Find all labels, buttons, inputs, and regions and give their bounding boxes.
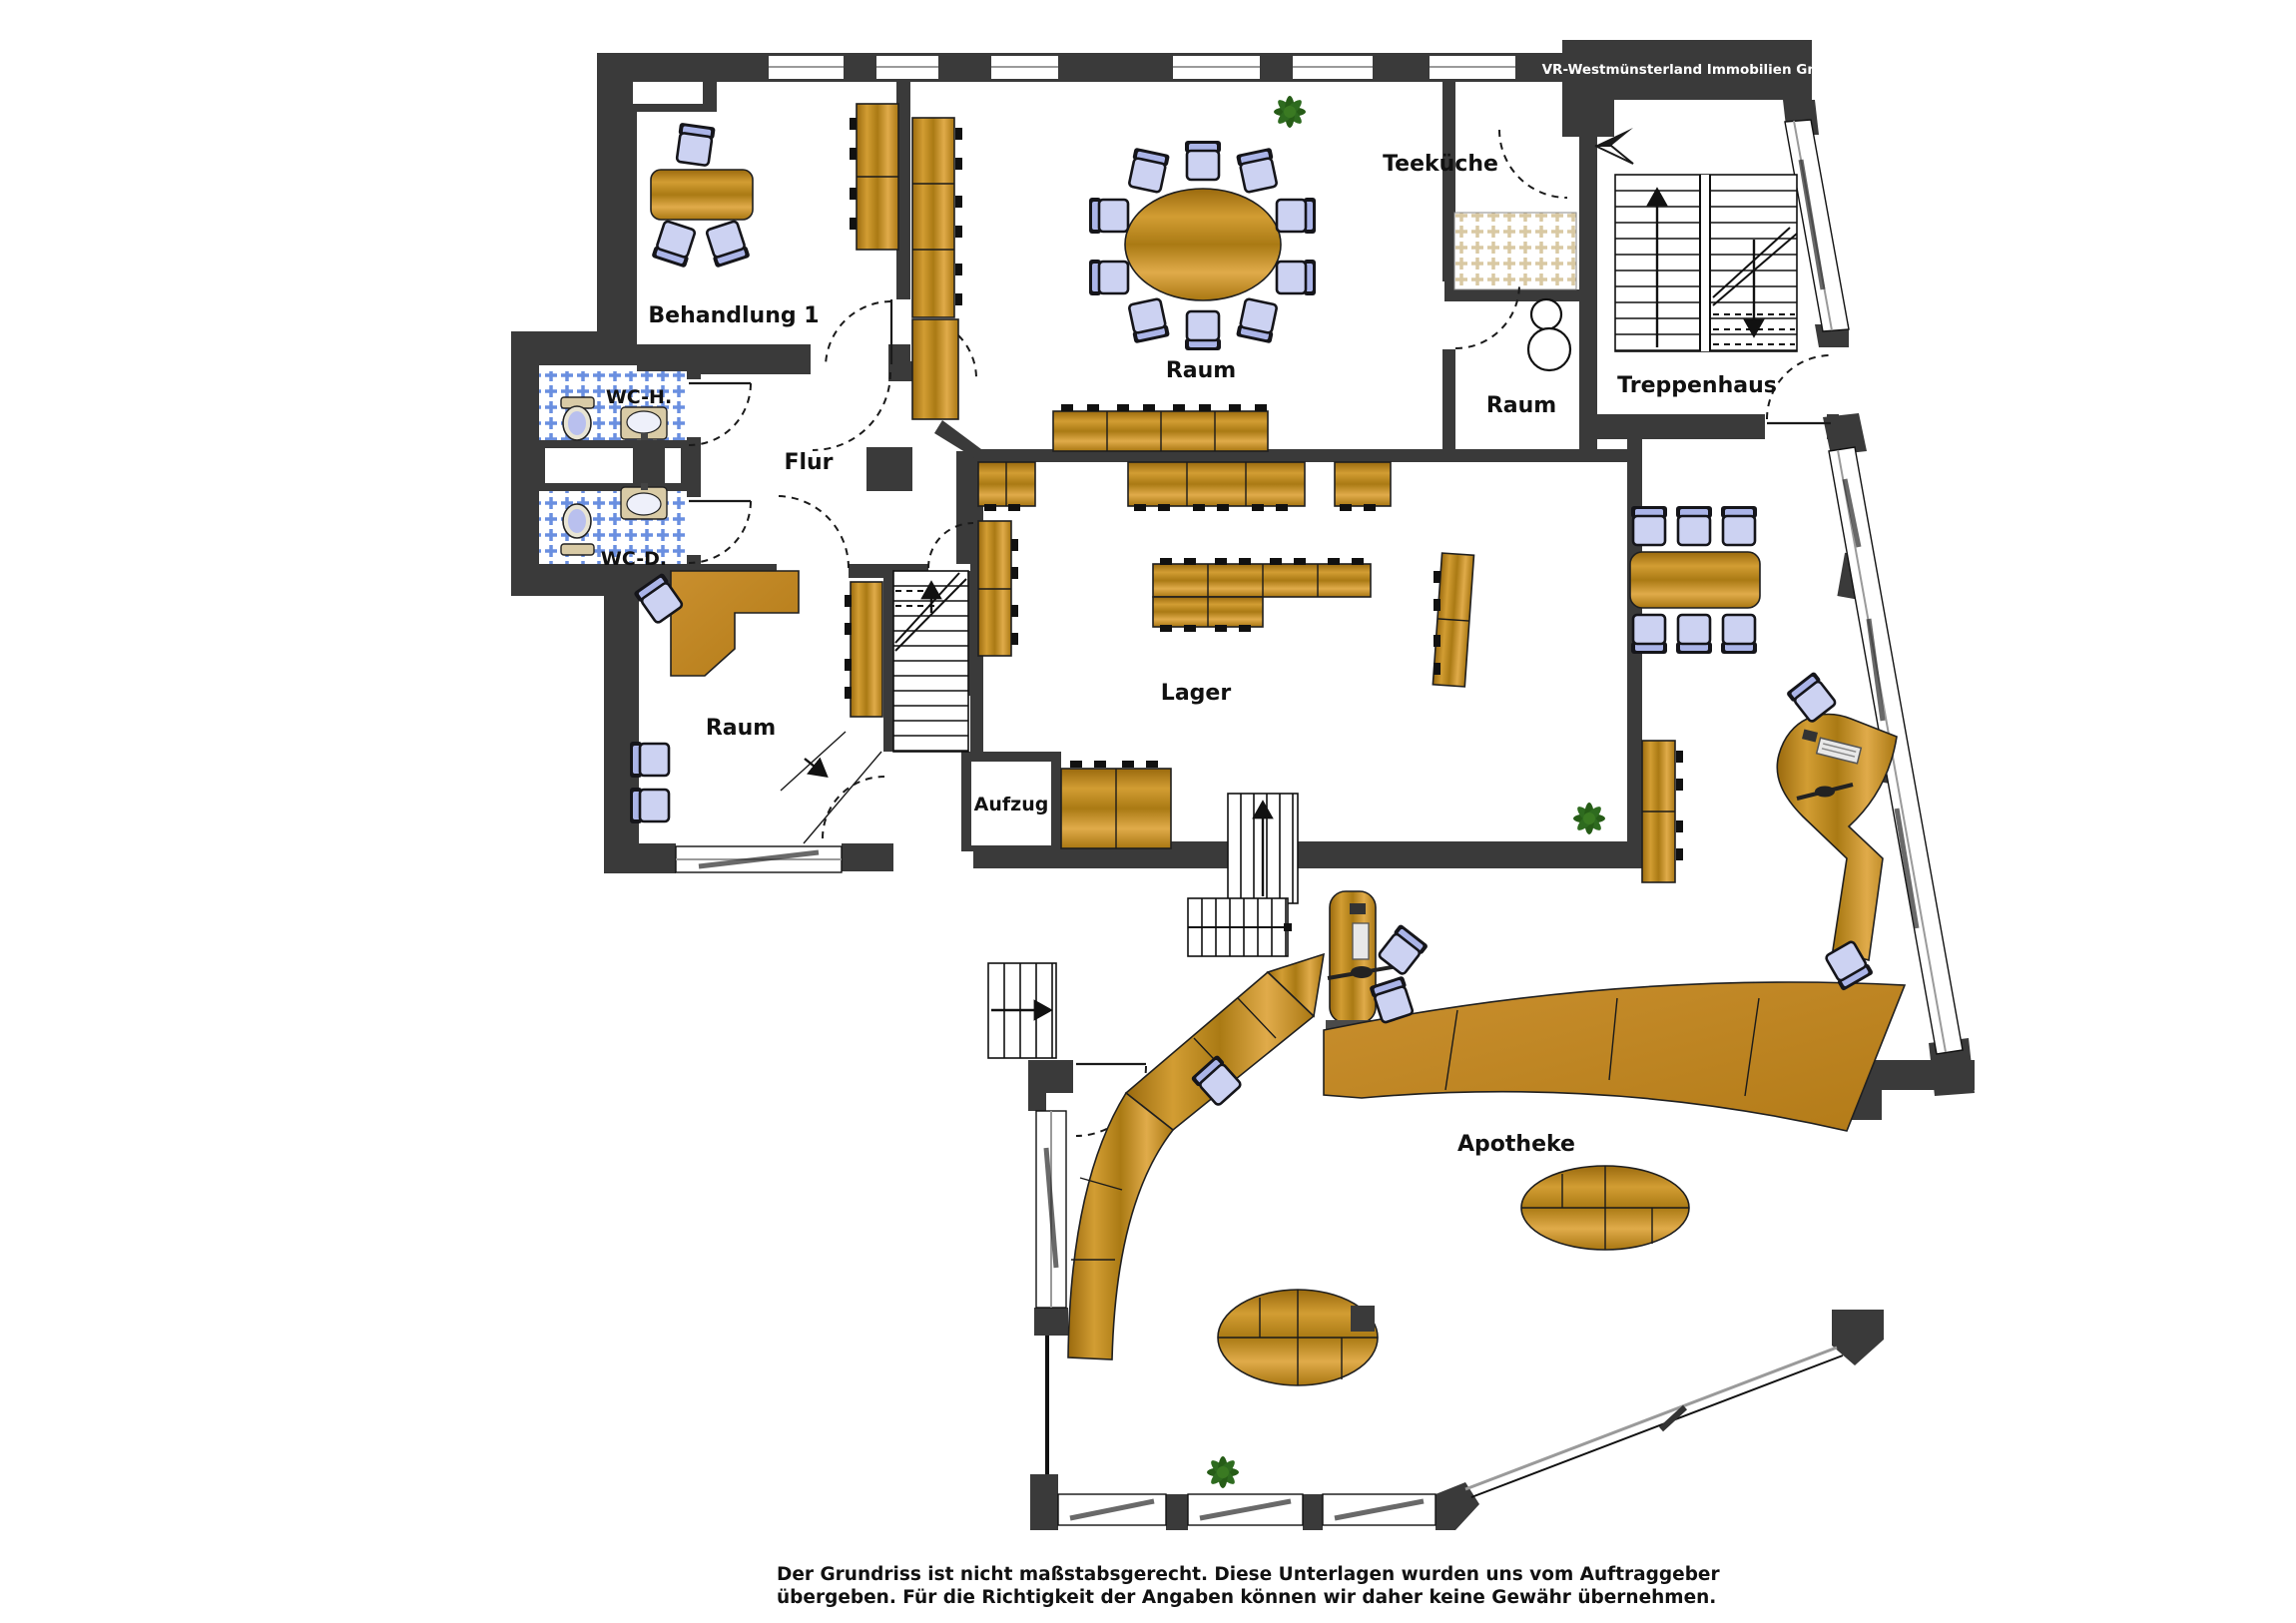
- table-tick: [1328, 558, 1340, 565]
- room-label-aufzug: Aufzug: [974, 794, 1049, 815]
- table-tick: [1434, 571, 1440, 583]
- table-tick: [1160, 558, 1172, 565]
- display-table-oval-2: [1218, 1290, 1378, 1385]
- table-tick: [850, 188, 857, 200]
- table-raum-left: [851, 582, 882, 717]
- plant-icon: [1573, 803, 1605, 834]
- table-tick: [1173, 404, 1185, 411]
- table-tick: [1184, 558, 1196, 565]
- table-tick: [850, 118, 857, 130]
- table-tick: [1199, 404, 1211, 411]
- table-tick: [845, 687, 852, 699]
- table-tick: [850, 218, 857, 230]
- table-tick: [1255, 404, 1267, 411]
- table-tick: [1122, 761, 1134, 768]
- table-tick: [1008, 504, 1020, 511]
- table-tick: [1094, 761, 1106, 768]
- plant-icon: [1274, 96, 1306, 128]
- table-tick: [1146, 761, 1158, 768]
- keyboard-icon: [1353, 923, 1369, 959]
- table-tick: [1011, 633, 1018, 645]
- table-tick: [1676, 848, 1683, 860]
- sink-icon: [621, 483, 667, 519]
- room-label-raum-left: Raum: [706, 716, 776, 741]
- fixture-circle-large: [1528, 328, 1570, 370]
- lager-table: [1128, 462, 1305, 506]
- table-six-seats: [1630, 552, 1760, 608]
- teekueche-tiles: [1454, 213, 1576, 289]
- floorplan-page: VR-Westmünsterland Immobilien GmbH Behan…: [0, 0, 2296, 1623]
- table-tick: [984, 504, 996, 511]
- table-tick: [1239, 625, 1251, 632]
- table-tick: [1070, 761, 1082, 768]
- room-label-lager: Lager: [1161, 681, 1232, 706]
- table-tick: [1011, 605, 1018, 617]
- table-tick: [1352, 558, 1364, 565]
- chair-icon: [1185, 311, 1221, 350]
- table-tick: [1239, 558, 1251, 565]
- table-tick: [1061, 404, 1073, 411]
- table-tick: [955, 158, 962, 170]
- table-tick: [955, 226, 962, 238]
- disclaimer-line-1: Der Grundriss ist nicht maßstabsgerecht.…: [777, 1564, 1720, 1585]
- flur-pillar: [866, 447, 912, 491]
- chair-icon: [1676, 615, 1712, 654]
- table-tick: [1676, 820, 1683, 832]
- table-tick: [1340, 504, 1352, 511]
- table-tick: [1158, 504, 1170, 511]
- chair-icon: [1631, 506, 1667, 545]
- table-tick: [1434, 599, 1440, 611]
- disclaimer-line-2: übergeben. Für die Richtigkeit der Angab…: [777, 1587, 1716, 1608]
- table-tick: [1364, 504, 1376, 511]
- table-tick: [1134, 504, 1146, 511]
- table-oval-conference: [1125, 189, 1281, 300]
- table-tick: [1011, 539, 1018, 551]
- table-tick: [955, 196, 962, 208]
- chair-icon: [1089, 260, 1128, 295]
- table-tick: [1215, 558, 1227, 565]
- room-label-wc-d: WC-D.: [601, 548, 667, 570]
- chair-icon: [630, 788, 669, 823]
- chair-icon: [1277, 260, 1316, 295]
- table-tick: [1184, 625, 1196, 632]
- table-tick: [1217, 504, 1229, 511]
- table-tick: [845, 595, 852, 607]
- table-tick: [1160, 625, 1172, 632]
- room-label-wc-h: WC-H.: [606, 386, 672, 408]
- table-tick: [1276, 504, 1288, 511]
- table-tick: [1676, 779, 1683, 791]
- table-tick: [1229, 404, 1241, 411]
- room-label-teekueche: Teeküche: [1383, 152, 1498, 177]
- table-tick: [1193, 504, 1205, 511]
- table-tick: [955, 293, 962, 305]
- table-tick: [955, 264, 962, 275]
- chair-icon: [1721, 506, 1757, 545]
- cabinet-raum-top-2: [912, 319, 958, 419]
- chair-icon: [1631, 615, 1667, 654]
- table-tick: [845, 659, 852, 671]
- table-tick: [1087, 404, 1099, 411]
- sink-icon: [621, 407, 667, 440]
- monitor-icon: [1350, 903, 1366, 914]
- window-apotheke-left: [1036, 1111, 1066, 1308]
- toilet-icon: [561, 504, 594, 555]
- table-tick: [1143, 404, 1155, 411]
- chair-icon: [1721, 615, 1757, 654]
- table-tick: [955, 128, 962, 140]
- chair-icon: [1185, 141, 1221, 180]
- lager-table: [1335, 462, 1391, 506]
- chair-icon: [630, 742, 669, 778]
- column-apotheke: [1351, 1306, 1375, 1332]
- chair-icon: [1676, 506, 1712, 545]
- room-label-behandlung-1: Behandlung 1: [648, 303, 819, 328]
- table-tick: [1270, 558, 1282, 565]
- desk-behandlung: [651, 170, 753, 220]
- room-label-treppenhaus: Treppenhaus: [1617, 373, 1777, 398]
- display-table-oval-1: [1521, 1166, 1689, 1250]
- table-tick: [850, 148, 857, 160]
- lager-table: [1153, 564, 1371, 597]
- table-tick: [1294, 558, 1306, 565]
- table-tick: [1434, 635, 1440, 647]
- table-tick: [1215, 625, 1227, 632]
- company-name: VR-Westmünsterland Immobilien GmbH: [1542, 62, 1843, 78]
- chair-icon: [1277, 198, 1316, 234]
- table-tick: [1117, 404, 1129, 411]
- room-label-raum-right: Raum: [1486, 393, 1556, 418]
- window-raum-left-bottom: [676, 846, 842, 872]
- window-bottom-band: [1058, 1494, 1435, 1525]
- table-tick: [1434, 663, 1440, 675]
- table-tick: [1676, 751, 1683, 763]
- chair-icon: [675, 123, 716, 167]
- room-label-apotheke: Apotheke: [1457, 1132, 1575, 1157]
- room-label-raum-top: Raum: [1166, 358, 1236, 383]
- plant-icon: [1207, 1456, 1239, 1488]
- chair-icon: [1089, 198, 1128, 234]
- table-tick: [1252, 504, 1264, 511]
- cabinet-raum-top: [912, 118, 954, 317]
- room-label-flur: Flur: [784, 450, 833, 475]
- table-tick: [1011, 567, 1018, 579]
- fixture-circle-small: [1531, 299, 1561, 329]
- floorplan-canvas: VR-Westmünsterland Immobilien GmbH Behan…: [0, 0, 2296, 1623]
- table-tick: [845, 623, 852, 635]
